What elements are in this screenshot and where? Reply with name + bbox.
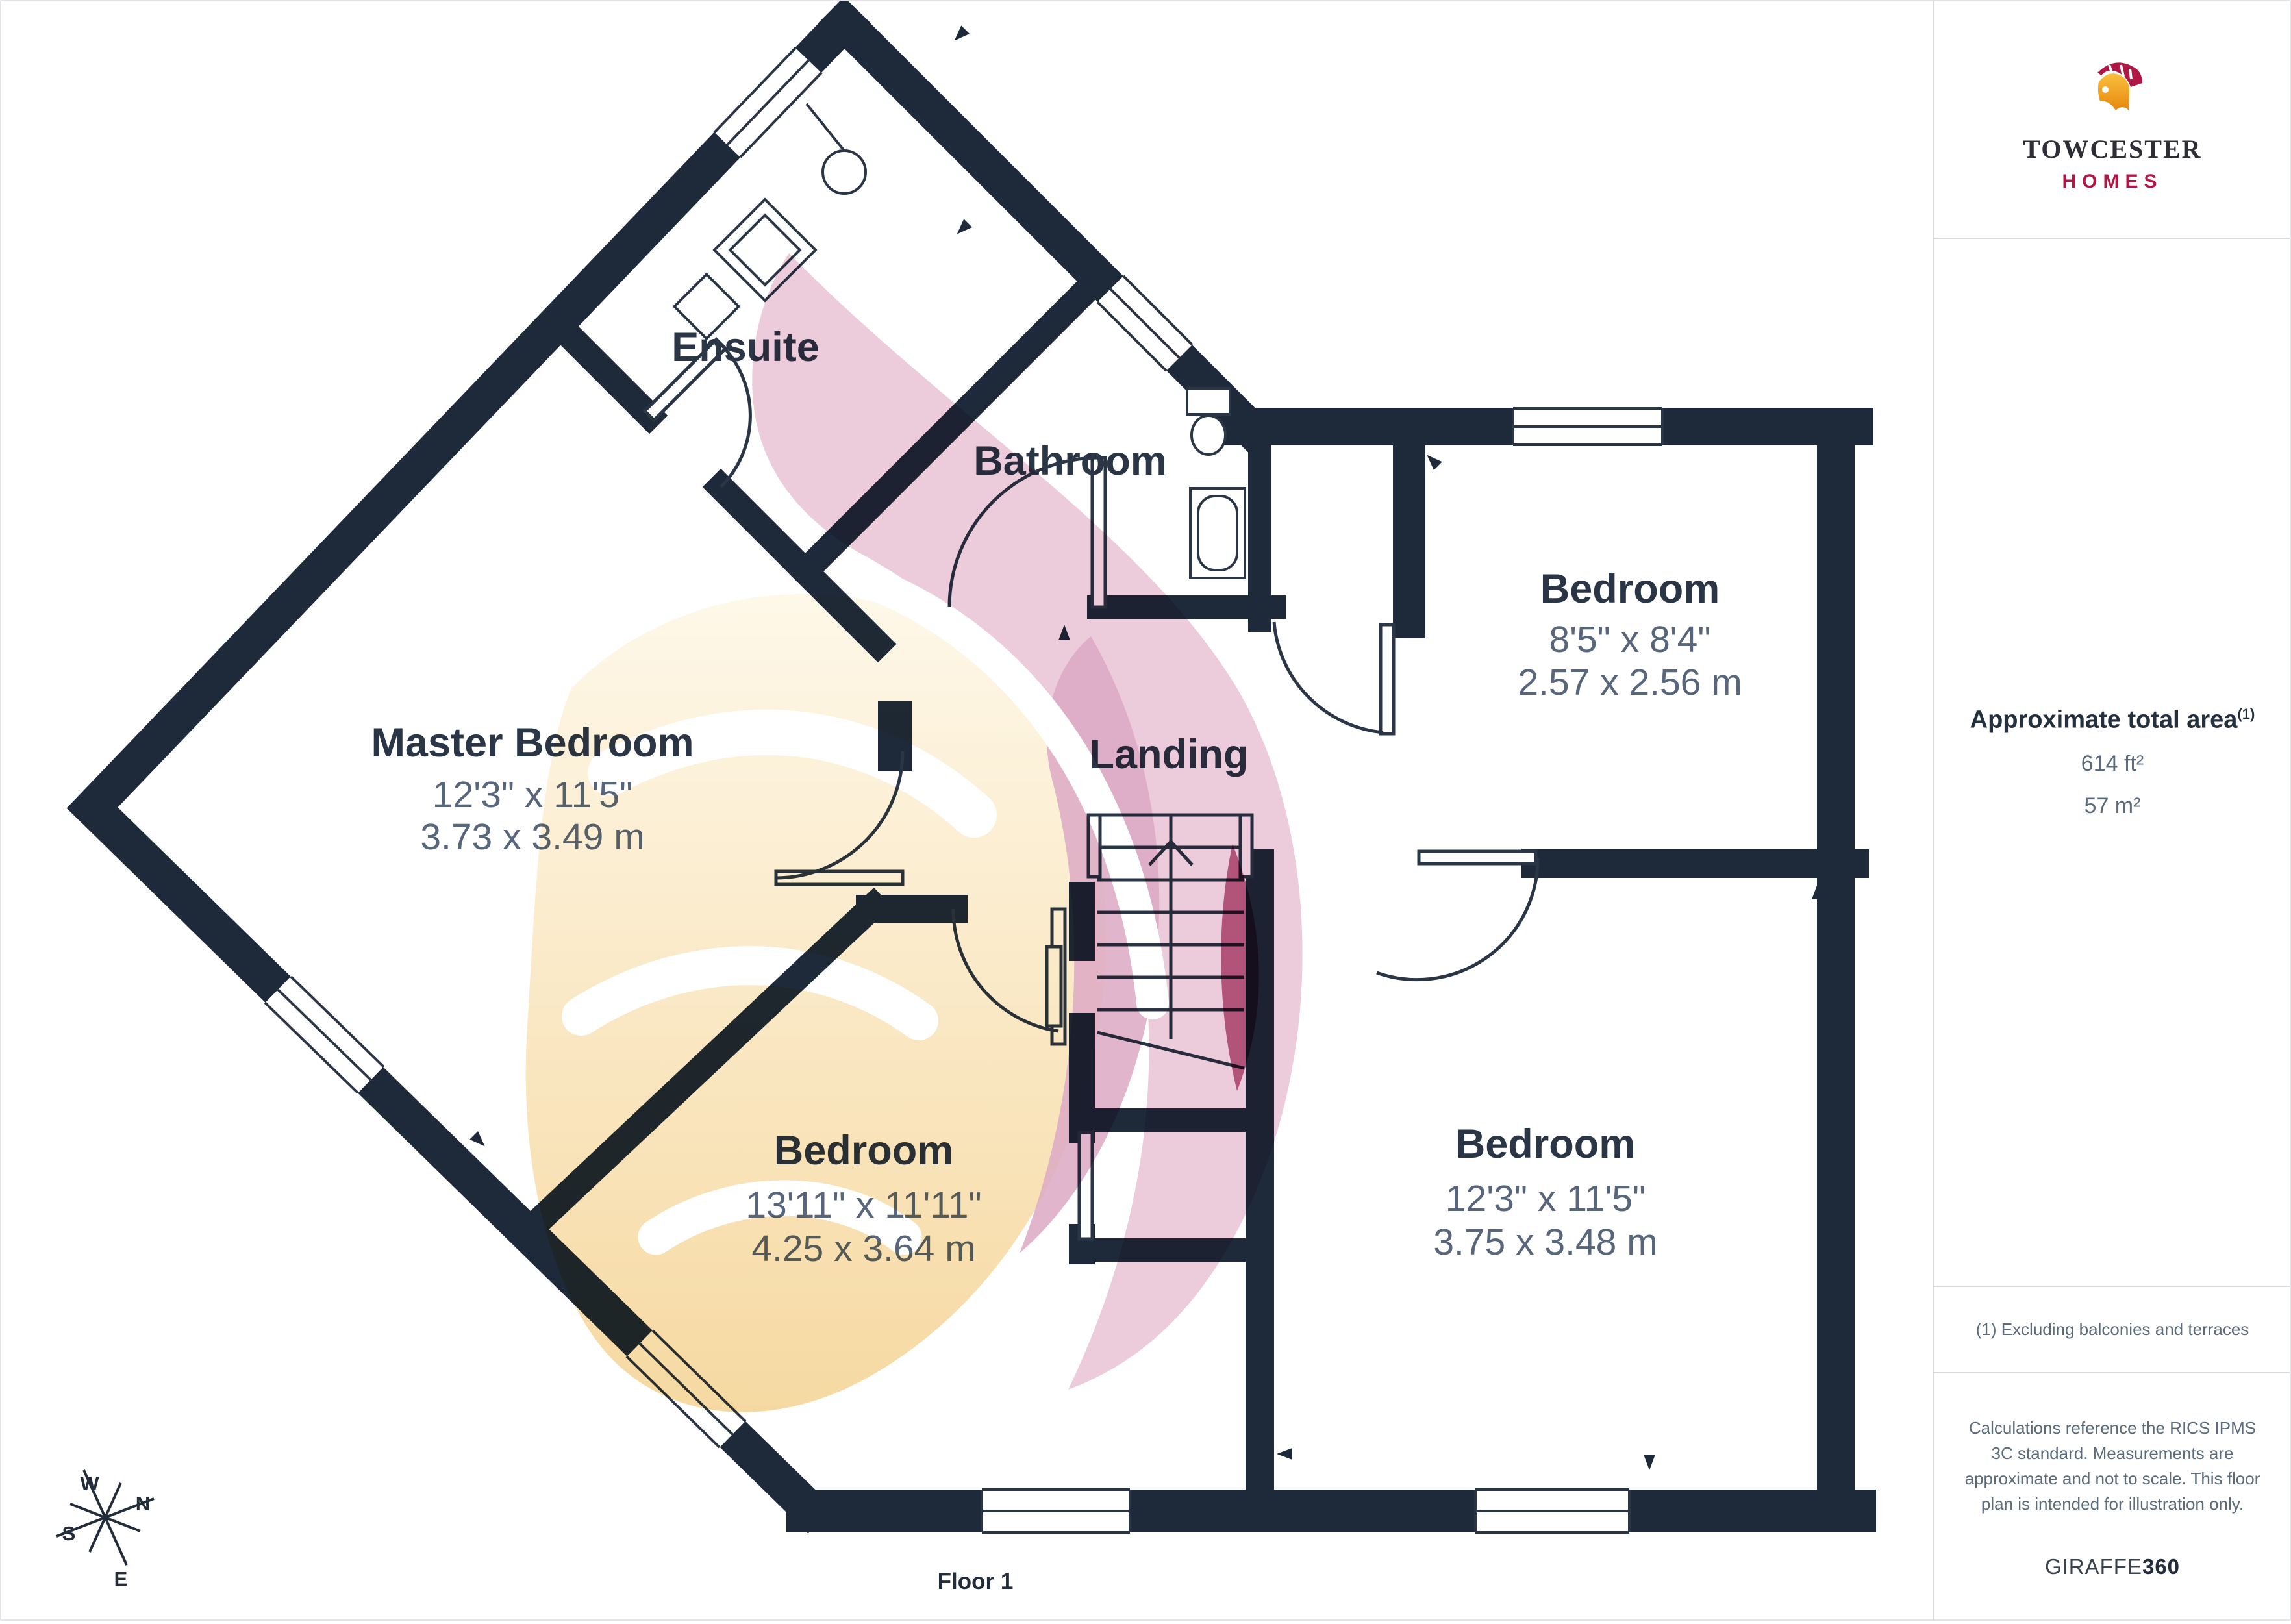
room-label-bedroom-top-right: Bedroom <box>1540 566 1720 612</box>
area-section: Approximate total area(1) 614 ft² 57 m² <box>1934 239 2291 1286</box>
towcester-helmet-icon <box>2082 57 2143 125</box>
giraffe360-brand: GIRAFFE360 <box>2045 1555 2180 1579</box>
brand-name: TOWCESTER <box>2023 134 2201 164</box>
compass-west: W <box>80 1472 99 1495</box>
info-sidebar: TOWCESTER HOMES Approximate total area(1… <box>1933 0 2291 1621</box>
area-footnote-marker: (1) <box>2237 706 2255 722</box>
floorplan-area: Master Bedroom 12'3" x 11'5" 3.73 x 3.49… <box>0 0 1933 1621</box>
compass-south: S <box>62 1522 76 1545</box>
disclaimer-text: Calculations reference the RICS IPMS 3C … <box>1962 1416 2262 1517</box>
brand-subtitle: HOMES <box>2062 171 2162 193</box>
room-dims-metric-bedroom-tr: 2.57 x 2.56 m <box>1518 662 1742 703</box>
giraffe360-helmet-watermark <box>526 253 1303 1412</box>
compass-east: E <box>114 1568 128 1590</box>
room-dims-metric-bedroom-br: 3.75 x 3.48 m <box>1433 1221 1657 1263</box>
area-title: Approximate total area(1) <box>1970 706 2255 734</box>
brand-logo: TOWCESTER HOMES <box>1934 0 2291 239</box>
room-dims-imperial-bedroom-tr: 8'5" x 8'4" <box>1549 619 1710 660</box>
bathroom-wc-icon <box>1187 388 1230 414</box>
area-value-ft: 614 ft² <box>1970 751 2255 777</box>
compass-rose-icon: W N S E <box>56 1470 154 1590</box>
room-label-bedroom-bottom-right: Bedroom <box>1456 1121 1636 1167</box>
floor-label: Floor 1 <box>938 1569 1014 1594</box>
room-dims-imperial-bedroom-br: 12'3" x 11'5" <box>1446 1178 1646 1219</box>
area-value-m: 57 m² <box>1970 793 2255 819</box>
footnote-text: (1) Excluding balconies and terraces <box>1976 1319 2249 1340</box>
footnote-section: (1) Excluding balconies and terraces <box>1934 1286 2291 1373</box>
disclaimer-section: Calculations reference the RICS IPMS 3C … <box>1934 1373 2291 1621</box>
ensuite-light-icon <box>823 151 866 194</box>
compass-north: N <box>136 1492 150 1515</box>
